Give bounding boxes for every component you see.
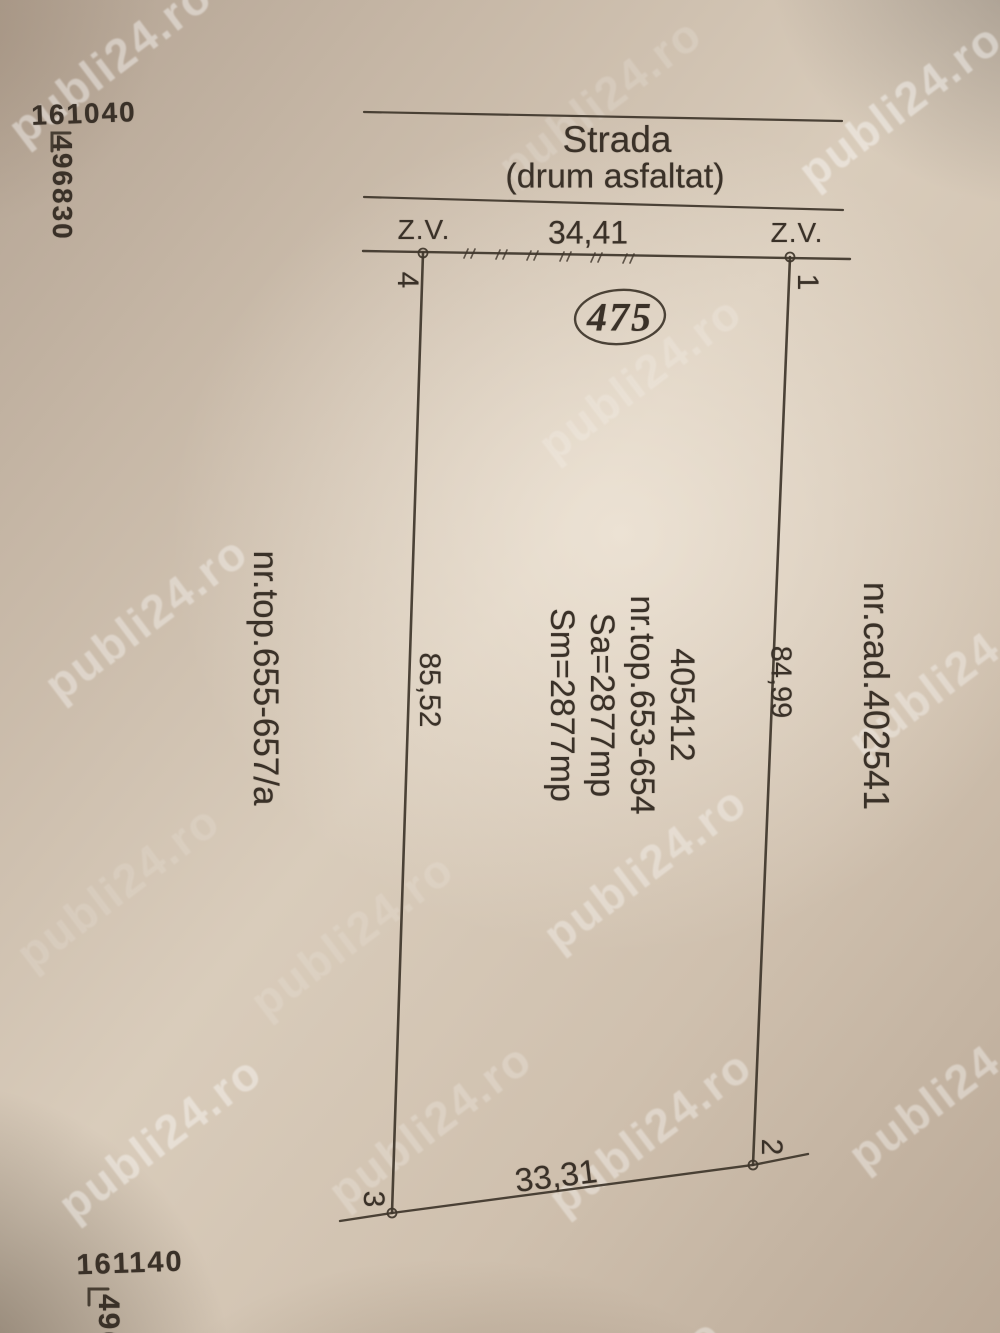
corner-label-1: 1 — [790, 274, 824, 291]
corner-label-2: 2 — [754, 1139, 788, 1156]
parcel-nr-top: nr.top.653-654 — [622, 595, 662, 814]
cadastral-sketch-photo: publi24.ro publi24.ro publi24.ro publi24… — [0, 0, 1000, 1333]
grid-coordinate-bottomleft-x: 161140 — [76, 1246, 184, 1283]
dimension-top: 34,41 — [548, 215, 628, 252]
plan-drawing — [0, 0, 1000, 1333]
green-zone-label-right: Z.V. — [771, 217, 824, 249]
street-edge-line-lower — [364, 197, 843, 210]
street-type: (drum asfaltat) — [505, 158, 724, 197]
parcel-top-boundary — [363, 251, 850, 259]
parcel-area-sm: Sm=2877mp — [542, 595, 582, 814]
green-zone-label-left: Z.V. — [398, 214, 451, 246]
grid-coordinate-bottomleft-y: 496 — [91, 1294, 125, 1333]
adjacent-parcel-left: nr.top.655-657/a — [245, 551, 285, 806]
corner-label-4: 4 — [390, 272, 424, 289]
parcel-number: 475 — [587, 294, 653, 341]
parcel-left-boundary — [392, 253, 423, 1213]
grid-coordinate-topleft-x: 161040 — [31, 96, 137, 132]
corner-label-3: 3 — [356, 1191, 390, 1208]
grid-coordinate-topleft-y: 496830 — [46, 135, 78, 240]
parcel-info-block: 405412 nr.top.653-654 Sa=2877mp Sm=2877m… — [542, 595, 702, 814]
adjacent-parcel-right: nr.cad.402541 — [855, 582, 897, 810]
street-name: Strada — [562, 119, 671, 161]
parcel-cad-number: 405412 — [662, 595, 702, 814]
parcel-area-sa: Sa=2877mp — [582, 595, 622, 814]
dimension-right: 84,99 — [764, 646, 797, 719]
dimension-left: 85,52 — [412, 652, 446, 727]
